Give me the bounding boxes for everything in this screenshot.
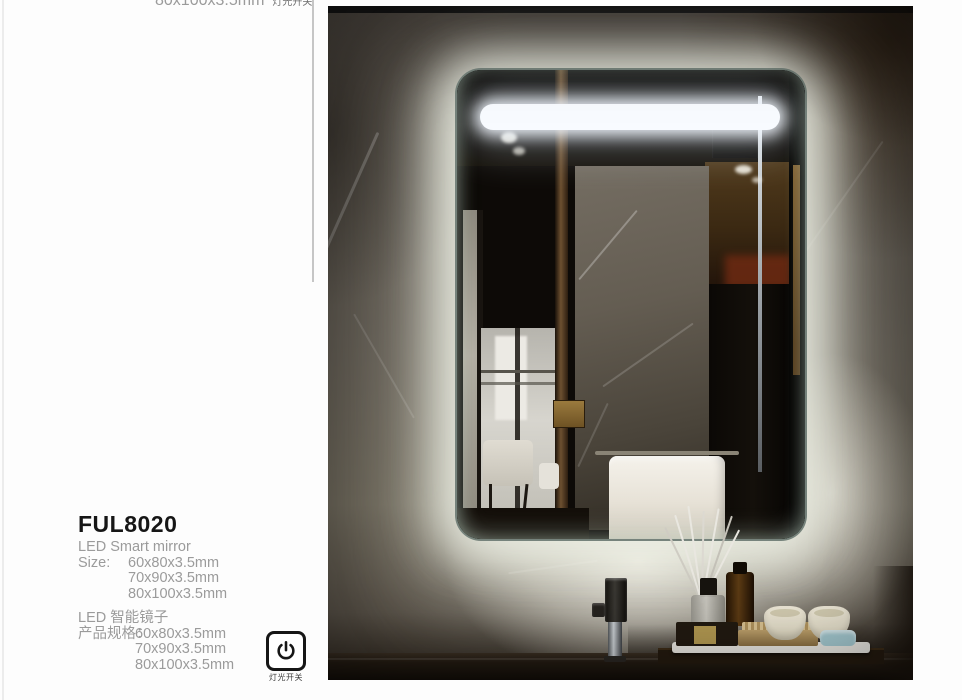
mirror-reflection-shower-pole — [758, 96, 762, 472]
mirror-reflection-mullion — [515, 328, 520, 534]
marble-vein — [578, 210, 637, 280]
size-spec-en: Size: 60x80x3.5mm 70x90x3.5mm 80x100x3.5… — [78, 556, 318, 603]
towel-rail — [595, 451, 739, 455]
page-left-border — [2, 0, 4, 700]
mirror-reflection-shower-head — [712, 126, 758, 158]
power-switch-label: 灯光开关 — [258, 672, 314, 683]
photo-top-bar — [328, 6, 913, 13]
size-values-zh: 60x80x3.5mm 70x90x3.5mm 80x100x3.5mm — [135, 627, 234, 674]
power-icon — [266, 631, 306, 671]
faucet-handle — [592, 603, 605, 617]
size-values-en: 60x80x3.5mm 70x90x3.5mm 80x100x3.5mm — [128, 556, 227, 603]
light-glint — [752, 177, 762, 183]
size-value: 70x90x3.5mm — [135, 642, 234, 658]
mirror-reflection-gold-trim — [793, 165, 800, 375]
mirror-reflection-sky — [495, 336, 527, 420]
mirror-reflection-wood-cove — [705, 162, 791, 287]
led-smart-mirror — [455, 68, 807, 541]
marble-vein — [602, 323, 693, 388]
mirror-reflection-ceiling — [457, 70, 805, 166]
light-glint — [513, 147, 525, 155]
bathroom-photo — [328, 6, 913, 680]
stool-leg — [489, 484, 492, 532]
amber-bottle — [726, 572, 754, 626]
mirror-reflection-warm-light — [725, 255, 791, 289]
amber-bottle-cap — [733, 562, 747, 574]
blue-washcloth — [820, 630, 856, 646]
catalog-page: 80x100x3.5mm灯光开关 FUL8020 LED Smart mirro… — [0, 0, 962, 700]
size-value: 60x80x3.5mm — [135, 627, 234, 643]
size-label-en: Size: — [78, 556, 128, 603]
mirror-reflection-dark-column — [789, 70, 805, 539]
mirror-reflection-glass-clamp — [553, 400, 585, 428]
product-title-en: LED Smart mirror — [78, 540, 318, 556]
mirror-reflection-shower-column — [709, 284, 789, 539]
led-front-light-bar — [480, 104, 780, 130]
product-title-zh: LED 智能镜子 — [78, 611, 318, 627]
mirror-reflection-vase — [539, 463, 559, 489]
size-value: 70x90x3.5mm — [128, 571, 227, 587]
cosmetic-box-label — [694, 626, 716, 644]
size-value: 80x100x3.5mm — [128, 587, 227, 603]
light-glint — [501, 132, 517, 143]
mirror-reflection-table — [457, 508, 589, 539]
faucet-body — [608, 622, 622, 658]
mirror-reflection-stool — [483, 440, 533, 486]
mirror-reflection-bronze-pole — [555, 70, 568, 518]
mirror-reflection-rail — [481, 370, 559, 373]
size-value: 60x80x3.5mm — [128, 556, 227, 572]
stool-leg — [520, 484, 528, 532]
faucet-base — [604, 656, 626, 662]
mirror-reflection-rail — [481, 382, 559, 385]
previous-size-line: 80x100x3.5mm — [155, 0, 264, 9]
marble-vein — [577, 403, 608, 467]
product-model: FUL8020 — [78, 511, 318, 537]
previous-card-divider — [312, 0, 314, 282]
mirror-reflection-window — [481, 328, 559, 534]
size-label-zh: 产品规格： — [78, 627, 135, 674]
mirror-reflection-window-strip — [463, 210, 477, 534]
light-glint — [735, 165, 752, 174]
mirror-reflection-mullion — [477, 210, 483, 534]
faucet-spout — [605, 578, 627, 622]
mirror-reflection-marble-panel — [575, 166, 709, 530]
light-glint — [501, 132, 517, 143]
previous-switch-label: 灯光开关 — [272, 0, 312, 8]
power-icon-glyph — [275, 640, 297, 662]
size-value: 80x100x3.5mm — [135, 658, 234, 674]
previous-card-clipped-text: 80x100x3.5mm灯光开关 — [155, 0, 312, 10]
